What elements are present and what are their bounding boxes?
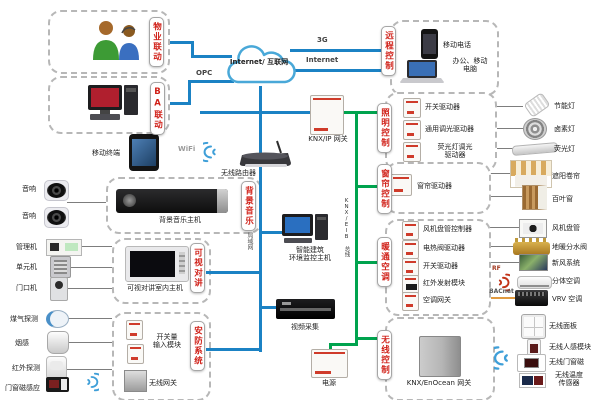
tag-lighting-control: 照明控制 — [377, 103, 392, 153]
unit-machine-icon — [50, 256, 71, 278]
mobile-phone-icon — [421, 29, 438, 59]
fluorescent-tube-icon — [512, 142, 559, 156]
knx-bus-line — [342, 111, 378, 114]
hvac-load-label: 风机盘管 — [552, 224, 580, 232]
3g-label: 3G — [317, 36, 328, 44]
tablet-label: 移动终端 — [92, 149, 120, 157]
manager-unit-icon — [46, 239, 82, 256]
manager-unit-line — [81, 246, 112, 247]
tablet-icon — [129, 134, 159, 171]
door-unit-line — [67, 288, 112, 289]
tag-remote-control: 远程控制 — [381, 26, 396, 76]
bgm-host-label: 背景音乐主机 — [140, 216, 220, 224]
lan-intercom-connector — [206, 271, 261, 274]
wireless-panel-icon — [521, 314, 546, 339]
security-wireless-gateway-label: 无线网关 — [149, 379, 177, 387]
unit-machine-label: 单元机 — [16, 263, 37, 271]
lighting-driver-label: 开关驱动器 — [425, 103, 460, 111]
lan-security-connector — [206, 348, 261, 351]
power-supply-icon — [311, 349, 348, 378]
awning-icon — [510, 160, 552, 188]
lan-to-knxip-line — [200, 111, 312, 114]
smoke-detector-label: 烟感 — [15, 339, 29, 347]
cfl-lamp-icon — [523, 92, 550, 118]
speaker-label: 音响 — [22, 185, 36, 193]
hvac-load-label: 新风系统 — [552, 259, 580, 267]
ir-detector-label: 红外探测 — [12, 364, 40, 372]
curtain-load-line — [487, 196, 523, 197]
manager-unit-label: 管理机 — [16, 243, 37, 251]
curtain-actuator-icon — [390, 174, 412, 196]
ac-gateway-icon — [402, 292, 419, 311]
hvac-driver-label: 电热阀驱动器 — [423, 244, 465, 252]
vrv-ac-icon — [515, 290, 548, 306]
tag-background-music: 背景音乐 — [241, 181, 256, 231]
tag-security-system: 安防系统 — [190, 321, 205, 371]
speaker-label: 音响 — [22, 212, 36, 220]
smoke-sensor-line — [68, 342, 112, 343]
security-wireless-signal-icon — [84, 372, 99, 392]
fluorescent-dimming-actuator-icon — [403, 142, 421, 162]
hvac-driver-label: 红外发射模块 — [423, 279, 465, 287]
blinds-icon — [522, 185, 547, 210]
enocean-gateway-icon — [419, 336, 461, 377]
bus-curtain-connector — [357, 185, 379, 188]
bus-hvac-connector — [357, 261, 379, 264]
wireless-temp-sensor-icon — [519, 373, 546, 388]
door-window-magnet-icon — [46, 377, 69, 392]
lamp-line — [493, 128, 523, 129]
lighting-driver-label: 荧光灯调光 驱动器 — [425, 143, 485, 160]
wifi-label: WiFi — [178, 145, 195, 153]
lamp-label: 荧光灯 — [554, 145, 575, 153]
gas-detector-icon — [46, 310, 69, 328]
wireless-device-label: 无线门窗磁 — [549, 358, 584, 366]
monitor-host-icon — [281, 213, 333, 246]
opc-label: OPC — [196, 69, 212, 77]
knx-smart-building-diagram: Internet/ 互联网 3G Internet OPC WiFi 局域网 K… — [0, 0, 600, 400]
rf-label: RF — [492, 265, 501, 272]
monitor-host-label: 智能建筑 环境监控主机 — [282, 246, 338, 263]
hvac-load-line — [487, 227, 519, 228]
hvac-driver-label: 空调网关 — [423, 296, 451, 304]
enocean-gateway-label: KNX/EnOcean 网关 — [400, 379, 478, 387]
wireless-signal-icon — [494, 345, 511, 371]
hvac-load-label: 分体空调 — [552, 277, 580, 285]
heating-valve-actuator-icon — [402, 240, 419, 259]
hvac-driver-label: 开关驱动器 — [423, 262, 458, 270]
fan-coil-controller-icon — [402, 221, 419, 240]
laptop-icon — [399, 59, 445, 84]
knx-bus-line — [355, 111, 358, 346]
bacnet-label: BACnet — [489, 288, 514, 295]
mobile-phone-label: 移动电话 — [443, 41, 471, 49]
power-supply-label: 电源 — [315, 379, 343, 387]
door-window-magnet-label: 门窗磁感应 — [5, 384, 40, 392]
curtain-load-label: 遮阳卷帘 — [552, 172, 580, 180]
gas-sensor-line — [66, 318, 112, 319]
lamp-line — [493, 106, 523, 107]
hvac-load-label: VRV 空调 — [552, 295, 582, 303]
tag-hvac-control: 暖通空调 — [377, 237, 392, 287]
bacnet-line — [487, 297, 515, 299]
binary-input-module-icon — [127, 344, 144, 364]
hvac-driver-label: 风机盘管控制器 — [423, 225, 472, 233]
split-ac-icon — [517, 276, 552, 289]
property-staff-icon — [86, 18, 146, 63]
wireless-door-magnet-icon — [517, 354, 546, 372]
internet-label: Internet — [306, 56, 338, 64]
bgm-host-icon — [116, 189, 228, 213]
fresh-air-unit-icon — [519, 254, 548, 271]
switch-actuator-icon — [403, 98, 421, 118]
knx-ip-gateway-icon — [310, 95, 344, 135]
tag-property-linkage: 物业联动 — [149, 17, 164, 67]
wireless-router-icon — [237, 140, 294, 168]
wifi-signal-icon — [203, 141, 219, 163]
tag-video-intercom: 可视对讲 — [190, 243, 205, 293]
knx-bus-label: KNX/EIB 总线 — [343, 198, 349, 257]
office-computer-label: 办公、移动 电脑 — [447, 57, 493, 74]
security-wireless-gateway-icon — [124, 370, 147, 392]
hvac-load-line — [487, 246, 515, 247]
lan-label: 局域网 — [246, 232, 252, 250]
wireless-router-label: 无线路由器 — [221, 169, 256, 177]
speaker-icon — [44, 207, 69, 228]
lan-backbone-line — [259, 86, 262, 352]
lighting-driver-label: 通用调光驱动器 — [425, 125, 474, 133]
binary-input-module-label: 开关量 输入模块 — [146, 333, 188, 350]
intercom-indoor-monitor-icon — [125, 246, 189, 282]
door-station-icon — [50, 277, 68, 301]
tag-wireless-control: 无线控制 — [377, 330, 392, 380]
wireless-device-label: 无线面板 — [549, 322, 577, 330]
bus-wireless-connector — [357, 337, 379, 340]
curtain-driver-label: 窗帘驱动器 — [417, 182, 452, 190]
ir-sensor-line — [66, 369, 112, 370]
binary-input-module-icon — [126, 320, 143, 340]
speaker-icon — [44, 180, 69, 201]
ba-workstation-icon — [86, 83, 144, 125]
tag-curtain-control: 窗帘控制 — [377, 164, 392, 214]
3g-line — [290, 49, 382, 52]
bus-power-connector — [329, 343, 357, 346]
lamp-label: 节能灯 — [554, 102, 575, 110]
unit-machine-line — [70, 267, 112, 268]
internet-line — [290, 69, 382, 72]
halogen-lamp-icon — [523, 118, 547, 140]
speaker-line — [67, 202, 106, 203]
gas-detector-label: 煤气探测 — [10, 315, 38, 323]
fan-coil-icon — [519, 219, 547, 238]
video-capture-label: 视频采集 — [282, 323, 328, 331]
property-cloud-line — [166, 41, 194, 44]
lamp-label: 卤素灯 — [554, 125, 575, 133]
intercom-indoor-host-label: 可视对讲室内主机 — [118, 284, 192, 292]
hvac-load-line — [487, 262, 520, 263]
door-station-label: 门口机 — [16, 284, 37, 292]
smoke-detector-icon — [47, 331, 69, 354]
internet-cloud-label: Internet/ 互联网 — [224, 58, 294, 66]
wireless-device-label: 无线人感模块 — [549, 343, 591, 351]
ba-cloud-line — [188, 82, 191, 105]
video-capture-icon — [276, 299, 335, 319]
knx-ip-gateway-label: KNX/IP 网关 — [302, 135, 354, 143]
tag-ba-linkage: BA联动 — [150, 82, 165, 135]
curtain-load-label: 百叶窗 — [552, 195, 573, 203]
hvac-load-label: 地暖分水阀 — [552, 243, 587, 251]
wireless-device-label: 无线温度 传感器 — [549, 371, 589, 388]
dimming-actuator-icon — [403, 120, 421, 140]
